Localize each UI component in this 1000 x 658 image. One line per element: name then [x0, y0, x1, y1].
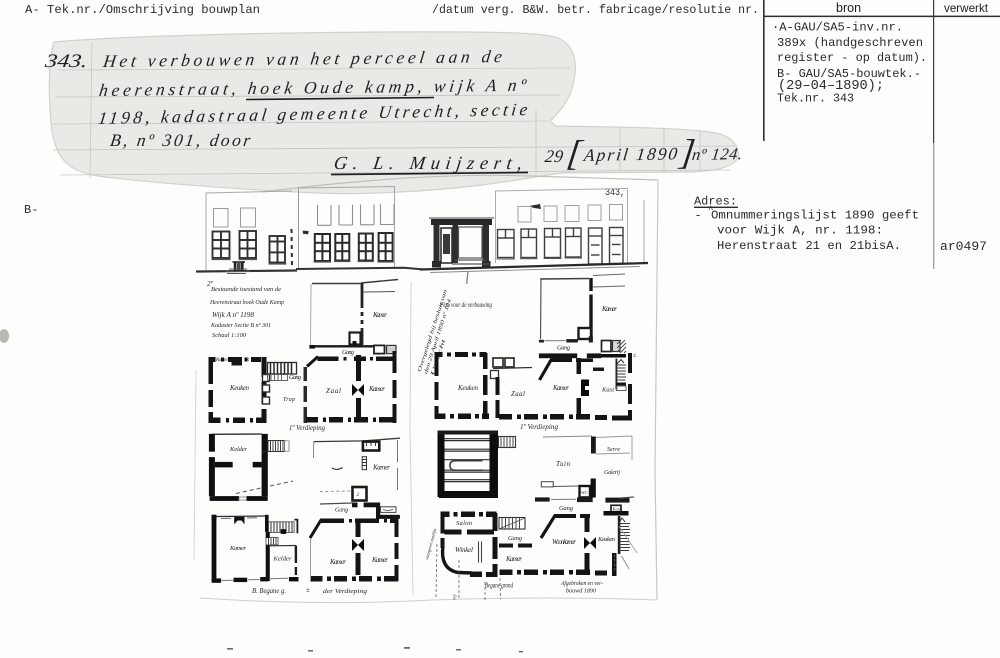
svg-text:Gang: Gang [557, 345, 571, 352]
svg-text:Gang: Gang [289, 374, 302, 381]
svg-text:Zaal: Zaal [326, 387, 341, 395]
svg-text:Kamer: Kamer [329, 558, 346, 566]
svg-text:2: 2 [357, 492, 360, 498]
svg-text:Adres:: Adres: [694, 195, 737, 209]
svg-text:Plan voor de verbouwing: Plan voor de verbouwing [439, 300, 492, 309]
svg-text:Tek.nr. 343: Tek.nr. 343 [777, 92, 854, 106]
svg-text:·A-GAU/SA5-inv.nr.: ·A-GAU/SA5-inv.nr. [772, 21, 903, 35]
svg-text:Winkel: Winkel [455, 546, 473, 554]
svg-text:Kamer: Kamer [505, 555, 522, 563]
svg-text:B-: B- [24, 203, 38, 217]
svg-text:Gang: Gang [559, 505, 574, 512]
svg-text:Kast: Kast [601, 387, 614, 394]
svg-text:Kelder: Kelder [273, 556, 292, 563]
svg-text:29: 29 [544, 146, 565, 166]
svg-text:Trap: Trap [283, 397, 295, 403]
svg-text:±: ± [633, 353, 637, 359]
svg-text:Schaal 1:100: Schaal 1:100 [212, 333, 246, 339]
svg-text:Gang: Gang [335, 508, 348, 514]
svg-text:R: R [245, 358, 249, 363]
svg-text:389x (handgeschreven: 389x (handgeschreven [777, 36, 923, 50]
svg-text:Kamer: Kamer [601, 305, 617, 313]
svg-text:ar0497: ar0497 [940, 240, 987, 254]
svg-text:Keuken: Keuken [457, 384, 479, 392]
svg-text:Wijk A nº 1198: Wijk A nº 1198 [212, 311, 255, 319]
svg-text:Salon: Salon [456, 520, 472, 527]
svg-text:Kamer: Kamer [552, 384, 569, 392]
svg-text:register - op datum).: register - op datum). [777, 51, 927, 65]
svg-text:343.: 343. [43, 51, 89, 72]
svg-text:Kamer: Kamer [372, 311, 387, 319]
svg-text:Galerij: Galerij [604, 470, 620, 476]
svg-text:B. Begane g.: B. Begane g. [252, 586, 286, 595]
svg-text:voorgevel rooilijn: voorgevel rooilijn [424, 527, 437, 560]
svg-text:Kamer: Kamer [368, 385, 385, 393]
svg-text:1º Verdieping: 1º Verdieping [289, 423, 325, 432]
svg-text:Tuin: Tuin [556, 460, 571, 468]
svg-text:Kadaster Sectie B nº 301: Kadaster Sectie B nº 301 [210, 323, 271, 329]
svg-text:bouwd 1890: bouwd 1890 [566, 589, 596, 595]
svg-text:bron: bron [836, 1, 861, 15]
svg-text:nº 124.: nº 124. [691, 144, 743, 164]
svg-text:Begane grond: Begane grond [485, 582, 513, 590]
svg-text:Gang: Gang [342, 349, 355, 356]
svg-text:Bestaande toestand van de: Bestaande toestand van de [211, 287, 281, 293]
svg-text:Kamer: Kamer [371, 556, 388, 564]
svg-text:-: - [695, 209, 702, 223]
svg-text:Kast: Kast [612, 507, 622, 512]
svg-text:voor Wijk A, nr. 1198:: voor Wijk A, nr. 1198: [717, 224, 883, 238]
svg-text:343,: 343, [605, 188, 625, 199]
svg-text:Woonkamer: Woonkamer [552, 538, 576, 546]
svg-text:1º Verdieping: 1º Verdieping [520, 422, 558, 431]
svg-text:Omnummeringslijst 1890 geeft: Omnummeringslijst 1890 geeft [711, 209, 919, 223]
svg-text:Keuken: Keuken [229, 384, 250, 392]
svg-text:Heerenstraat hoek Oude Kamp: Heerenstraat hoek Oude Kamp [209, 300, 284, 306]
svg-text:Zaal: Zaal [511, 390, 525, 398]
svg-text:A- Tek.nr./Omschrijving bouwpl: A- Tek.nr./Omschrijving bouwplan [25, 3, 260, 17]
svg-text:2º: 2º [207, 280, 214, 288]
svg-text:/datum verg. B&W. betr. fabric: /datum verg. B&W. betr. fabricage/resolu… [432, 3, 759, 17]
svg-text:Kelder: Kelder [229, 446, 247, 453]
svg-text:Afgebroken en ver-: Afgebroken en ver- [560, 580, 603, 587]
svg-text:der Verdieping: der Verdieping [323, 588, 368, 595]
svg-text:Herenstraat 21 en 21bisA.: Herenstraat 21 en 21bisA. [717, 239, 901, 253]
svg-text:WC: WC [581, 490, 589, 495]
svg-text:Gang: Gang [508, 535, 523, 542]
svg-text:±: ± [306, 586, 310, 594]
svg-text:Serre: Serre [607, 447, 620, 453]
svg-text:Raam: Raam [215, 358, 228, 363]
svg-text:Keuken: Keuken [597, 536, 615, 543]
svg-text:Kamer: Kamer [372, 464, 390, 472]
svg-text:Kamer: Kamer [229, 545, 246, 552]
svg-text:verwerkt: verwerkt [944, 1, 989, 15]
